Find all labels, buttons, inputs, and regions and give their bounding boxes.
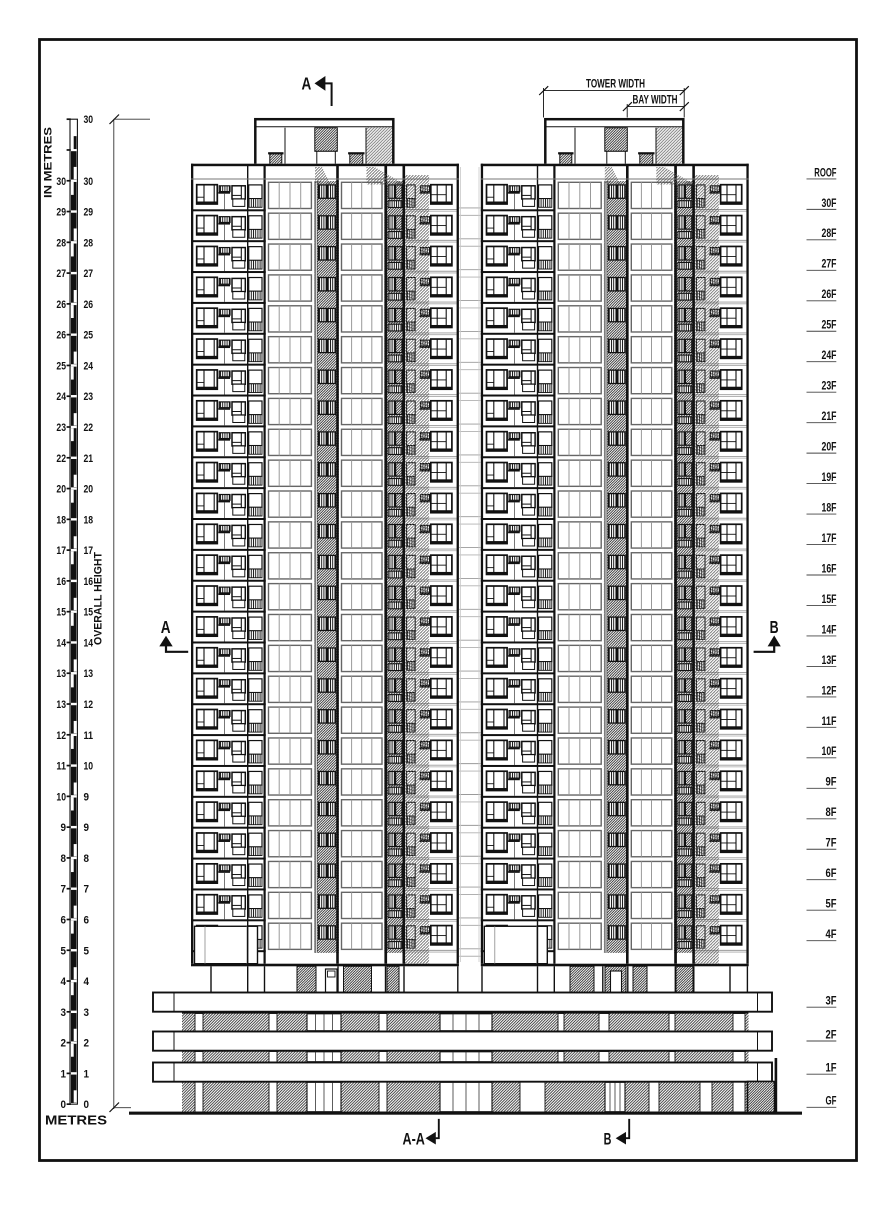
svg-text:6: 6 [61,914,67,926]
svg-text:29: 29 [84,207,94,219]
svg-text:14F: 14F [822,623,837,636]
svg-text:12F: 12F [822,684,837,697]
svg-text:8: 8 [84,853,90,865]
svg-text:18F: 18F [822,501,837,514]
svg-text:17F: 17F [822,532,837,545]
svg-text:20: 20 [84,484,94,496]
svg-text:9F: 9F [826,776,837,789]
svg-text:26: 26 [56,330,66,342]
svg-text:22: 22 [84,422,94,434]
svg-text:9: 9 [84,822,90,834]
svg-text:15F: 15F [822,593,837,606]
svg-text:8F: 8F [826,806,837,819]
svg-text:11F: 11F [822,715,837,728]
svg-text:B: B [604,1131,612,1149]
svg-text:27: 27 [56,268,66,280]
svg-text:5: 5 [61,945,67,957]
svg-text:11: 11 [56,761,66,773]
svg-text:B: B [770,617,779,637]
svg-text:27F: 27F [822,258,837,271]
svg-text:IN METRES: IN METRES [43,126,55,198]
svg-text:4F: 4F [826,928,837,941]
svg-text:GF: GF [826,1095,837,1108]
svg-text:4: 4 [61,976,67,988]
svg-text:4: 4 [84,976,90,988]
svg-text:3F: 3F [826,995,837,1008]
svg-text:26: 26 [84,299,94,311]
svg-text:29: 29 [56,207,66,219]
svg-text:24F: 24F [822,349,837,362]
svg-text:METRES: METRES [45,1114,107,1128]
svg-text:23F: 23F [822,380,837,393]
svg-text:16F: 16F [822,562,837,575]
svg-text:11: 11 [84,730,94,742]
svg-text:28: 28 [56,237,66,249]
svg-text:9: 9 [84,791,90,803]
svg-text:6F: 6F [826,867,837,880]
svg-text:10: 10 [84,761,94,773]
svg-text:30: 30 [56,176,66,188]
svg-text:BAY WIDTH: BAY WIDTH [633,94,678,106]
svg-text:2: 2 [61,1038,67,1050]
svg-text:3: 3 [61,1007,67,1019]
svg-text:23: 23 [84,391,94,403]
svg-text:10: 10 [56,791,66,803]
svg-text:7: 7 [84,884,90,896]
svg-text:28: 28 [84,237,94,249]
svg-text:26F: 26F [822,288,837,301]
svg-text:0: 0 [84,1099,90,1111]
svg-text:16: 16 [56,576,66,588]
svg-text:21F: 21F [822,410,837,423]
svg-text:24: 24 [56,391,66,403]
svg-text:26: 26 [56,299,66,311]
svg-text:18: 18 [56,514,66,526]
svg-text:19F: 19F [822,471,837,484]
svg-text:7F: 7F [826,837,837,850]
svg-text:13: 13 [84,668,94,680]
svg-text:13F: 13F [822,654,837,667]
svg-text:TOWER WIDTH: TOWER WIDTH [586,78,645,90]
svg-text:1: 1 [61,1068,67,1080]
svg-text:25F: 25F [822,319,837,332]
svg-text:10F: 10F [822,745,837,758]
svg-text:12: 12 [56,730,66,742]
svg-text:9: 9 [61,822,67,834]
svg-text:5F: 5F [826,898,837,911]
svg-text:15: 15 [56,607,66,619]
svg-text:23: 23 [56,422,66,434]
svg-text:28F: 28F [822,227,837,240]
svg-text:8: 8 [61,853,67,865]
svg-text:20: 20 [56,484,66,496]
svg-text:17: 17 [56,545,66,557]
svg-text:13: 13 [56,668,66,680]
svg-text:0: 0 [61,1099,67,1111]
svg-text:30: 30 [84,176,94,188]
svg-text:27: 27 [84,268,94,280]
svg-text:30F: 30F [822,197,837,210]
svg-text:A: A [161,617,171,637]
svg-text:25: 25 [84,330,94,342]
svg-text:24: 24 [84,360,94,372]
svg-text:21: 21 [84,453,94,465]
svg-text:14: 14 [56,637,66,649]
svg-text:18: 18 [84,514,94,526]
svg-text:12: 12 [84,699,94,711]
svg-text:2: 2 [84,1038,90,1050]
svg-text:13: 13 [56,699,66,711]
svg-text:25: 25 [56,360,66,372]
svg-text:1F: 1F [826,1062,837,1075]
svg-text:3: 3 [84,1007,90,1019]
svg-text:A-A: A-A [403,1131,425,1149]
svg-text:ROOF: ROOF [814,166,836,179]
svg-text:A: A [302,73,312,93]
svg-text:2F: 2F [826,1028,837,1041]
svg-text:5: 5 [84,945,90,957]
svg-text:7: 7 [61,884,67,896]
svg-text:OVERALL HEIGHT: OVERALL HEIGHT [93,552,105,645]
svg-text:30: 30 [84,114,94,126]
svg-text:22: 22 [56,453,66,465]
svg-text:20F: 20F [822,441,837,454]
svg-text:6: 6 [84,914,90,926]
svg-text:1: 1 [84,1068,90,1080]
